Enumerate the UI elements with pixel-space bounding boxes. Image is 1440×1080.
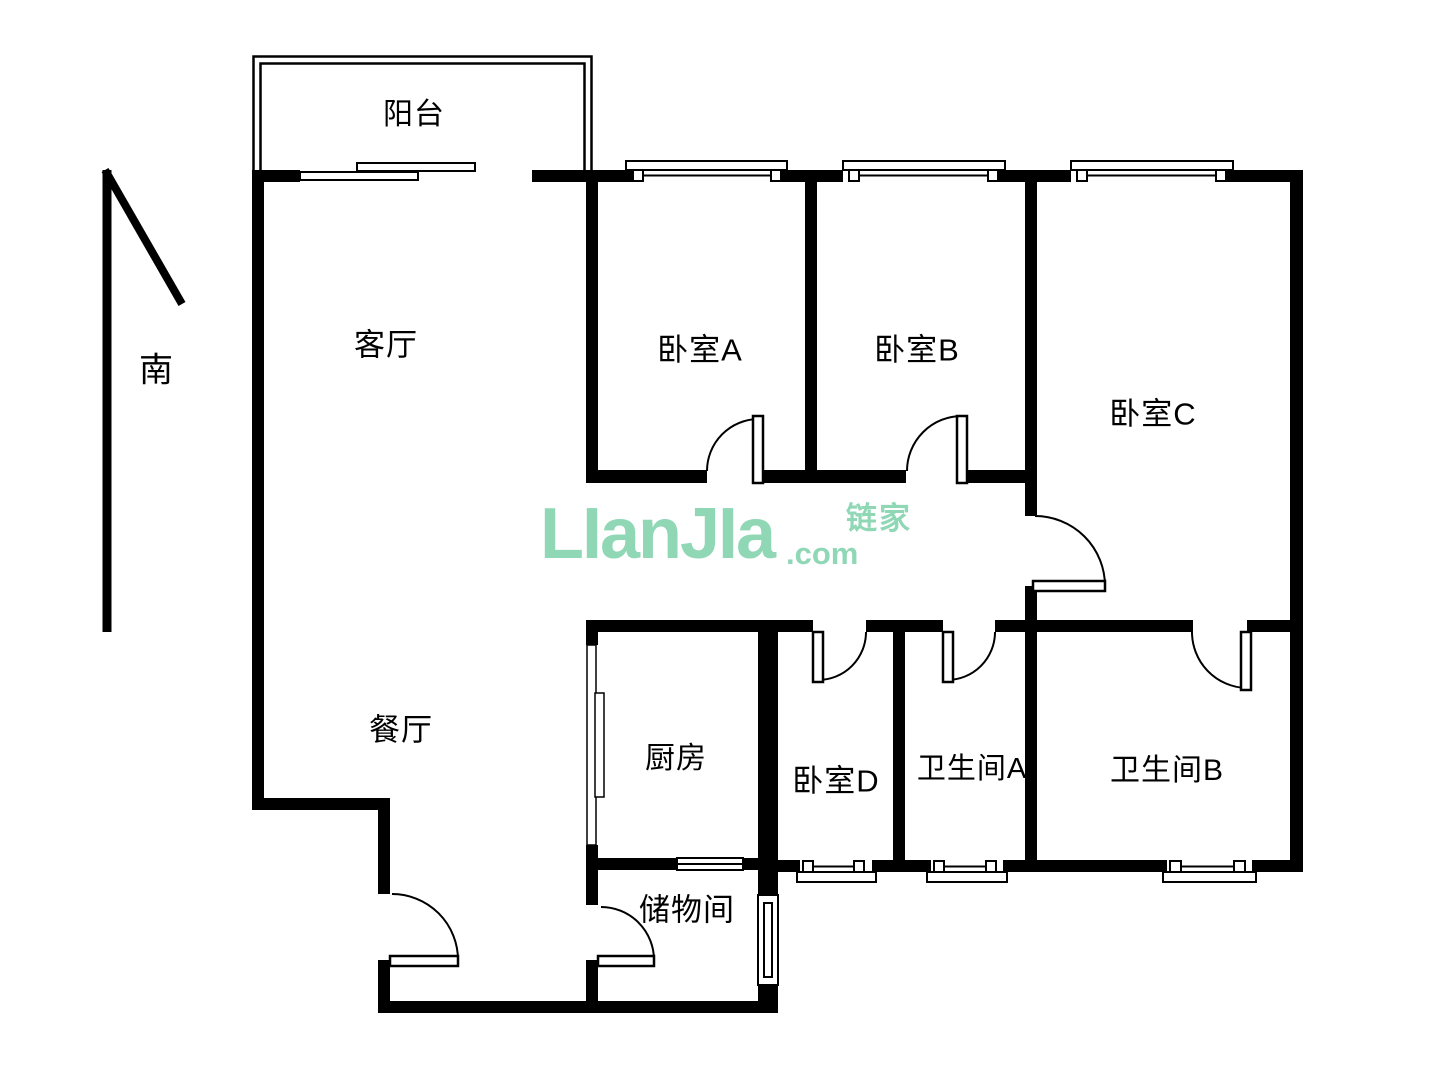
wall xyxy=(872,860,931,872)
wall xyxy=(586,845,598,905)
wall xyxy=(758,985,778,1013)
wall xyxy=(1003,860,1167,872)
window-bathroom-b xyxy=(1163,861,1256,882)
window-bedroom-b xyxy=(843,161,1005,181)
wall xyxy=(252,798,390,810)
wall xyxy=(1025,170,1037,516)
door-bedroom-c xyxy=(1033,516,1105,591)
sliding-panel xyxy=(300,172,418,180)
wall xyxy=(595,470,707,483)
wall xyxy=(586,620,598,645)
room-label-bedroom-a: 卧室A xyxy=(657,325,743,370)
wall xyxy=(995,620,1193,632)
door-bedroom-a xyxy=(707,416,763,483)
room-label-bedroom-b: 卧室B xyxy=(874,325,960,370)
wall xyxy=(586,170,598,483)
wall xyxy=(893,632,905,860)
compass-arrow xyxy=(105,170,182,632)
door-bedroom-b xyxy=(907,416,967,483)
wall xyxy=(598,858,677,870)
room-label-bathroom-a: 卫生间A xyxy=(917,745,1027,787)
wall xyxy=(866,620,943,632)
room-label-bedroom-c: 卧室C xyxy=(1109,389,1196,434)
lianjia-com-watermark: .com xyxy=(786,538,858,569)
wall xyxy=(758,632,778,895)
sliding-panel xyxy=(357,163,475,171)
compass-south-label: 南 xyxy=(139,343,173,392)
wall xyxy=(532,170,632,182)
kitchen-partition xyxy=(587,645,604,845)
window-bedroom-c xyxy=(1071,161,1233,181)
wall xyxy=(252,170,264,810)
lianjia-cn-watermark: 链家 xyxy=(846,503,912,534)
window-bedroom-d xyxy=(797,861,876,882)
room-label-storage-room: 储物间 xyxy=(639,885,735,930)
wall xyxy=(586,960,598,1013)
door-bathroom-a xyxy=(943,632,995,682)
room-label-balcony: 阳台 xyxy=(383,89,445,133)
wall xyxy=(1025,586,1037,632)
wall xyxy=(805,170,817,483)
wall xyxy=(966,470,1025,483)
window-bathroom-a xyxy=(927,861,1007,882)
room-label-bedroom-d: 卧室D xyxy=(792,756,879,801)
room-label-bathroom-b: 卫生间B xyxy=(1110,745,1224,789)
balcony-sliding-door xyxy=(300,163,475,180)
wall xyxy=(378,960,390,1013)
room-label-living-room: 客厅 xyxy=(354,320,418,365)
wall xyxy=(1290,170,1303,872)
lianjia-logo-watermark: LIanJIa xyxy=(540,498,774,570)
door-bathroom-b xyxy=(1192,632,1251,690)
wall xyxy=(378,1001,778,1013)
walls xyxy=(252,170,1303,1013)
wall xyxy=(378,798,390,894)
wall xyxy=(586,620,813,632)
window-kitchen-storage xyxy=(677,858,743,870)
floor-plan-image: 阳台 客厅 卧室A 卧室B 卧室C 餐厅 厨房 卧室D 卫生间A 卫生间B 储物… xyxy=(0,0,1440,1080)
room-label-kitchen: 厨房 xyxy=(645,733,707,777)
door-bedroom-d xyxy=(813,632,866,682)
room-label-dining-room: 餐厅 xyxy=(369,705,433,750)
window-bedroom-a xyxy=(626,161,787,181)
window-storage-right xyxy=(758,895,778,985)
wall xyxy=(763,470,906,483)
kitchen-sliding-panel xyxy=(595,693,604,797)
door-entry xyxy=(390,894,458,966)
